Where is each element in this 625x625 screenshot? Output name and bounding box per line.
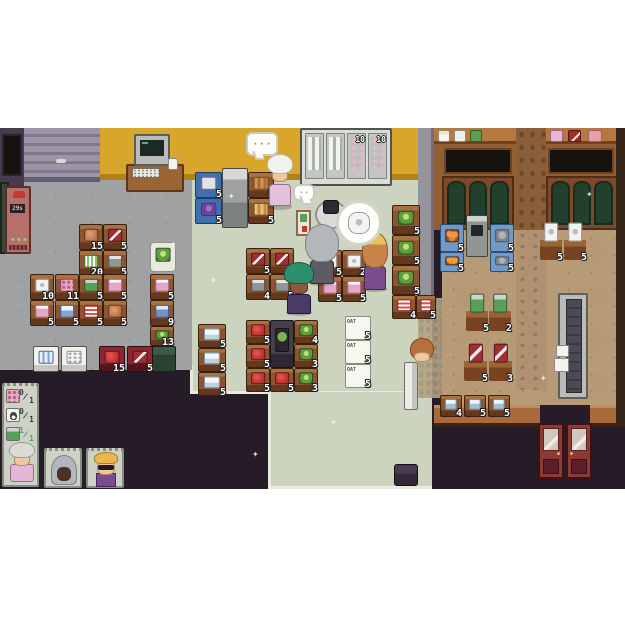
customer-card-blond[interactable]: [86, 448, 124, 488]
mini-meat-slab: [588, 130, 602, 142]
shelf-can-green[interactable]: 5: [79, 274, 103, 300]
granny-hair: [9, 442, 35, 458]
cerealstripe-item: [84, 305, 98, 317]
customer-portrait-granny[interactable]: [6, 442, 38, 484]
item-label: ✦: [330, 418, 337, 427]
stock-count: 5: [365, 380, 371, 390]
item-label: ✦: [252, 450, 259, 459]
stock-count: 2: [506, 324, 512, 334]
pinkbottle-item: [155, 279, 169, 291]
ham-item: [84, 229, 98, 241]
tp-item: [544, 223, 558, 242]
stock-count: 5: [121, 318, 127, 328]
plantsprout-item: [275, 328, 289, 352]
pinkbottle-item: [108, 279, 122, 291]
stock-count: 5: [360, 294, 366, 304]
speech-bubble-small: · ·: [293, 184, 315, 201]
cabbage-item: [156, 247, 171, 262]
shelf-ham[interactable]: 15: [79, 224, 103, 250]
apple-item: [275, 373, 289, 384]
blue-container-shelf[interactable]: 5: [464, 395, 486, 417]
salmon-table[interactable]: 5: [464, 345, 487, 381]
mini-oat-box: [438, 130, 450, 142]
npc-old-lady[interactable]: [264, 154, 296, 210]
fish-item: [251, 253, 265, 265]
crate-goods[interactable]: 5: [490, 224, 514, 252]
granny-dress: [10, 464, 34, 482]
bluebottles-item: [39, 351, 54, 363]
stock-count: 5: [504, 409, 510, 419]
customer-card-hooded[interactable]: [44, 448, 82, 488]
thought-bubble-toilet-paper: [336, 200, 382, 246]
cangrey-item: [108, 255, 122, 267]
cangreen-item: [84, 279, 98, 291]
game-viewport: 29s 10 10 105115152055555559131555555545…: [0, 128, 625, 489]
sunglasses-icon: [98, 465, 114, 470]
stock-count: 5: [557, 253, 563, 263]
shelf-can-grey[interactable]: 4: [246, 274, 270, 300]
waterjug-item: [204, 329, 220, 340]
cabbage-tier[interactable]: 5: [392, 265, 420, 295]
purplefruit-item: [201, 203, 217, 215]
shelf-salmon[interactable]: 5: [103, 224, 127, 250]
shelf-cereal-stripe[interactable]: 5: [79, 300, 103, 326]
animalface-item: [495, 256, 509, 265]
shelf-apples[interactable]: 5: [246, 320, 270, 344]
cabbage-item: [398, 270, 414, 285]
salmon-table[interactable]: 3: [489, 345, 512, 381]
mini-white-box: [454, 130, 466, 142]
flowermeat-item: [60, 279, 74, 291]
blond-shirt: [96, 473, 116, 487]
shelf-oat-box[interactable]: OAT5: [345, 316, 371, 340]
cangreen-item: [493, 294, 507, 313]
shelf-oat-box[interactable]: OAT5: [345, 364, 371, 388]
stock-count: 3: [507, 374, 513, 384]
seed-stand[interactable]: [270, 320, 294, 368]
stock-count: 5: [216, 216, 222, 226]
shelf-cereal-green[interactable]: 20: [79, 250, 103, 276]
apple-item: [105, 351, 120, 363]
animalface-item: [495, 229, 509, 243]
crate-oranges[interactable]: 5: [440, 224, 464, 252]
shelf-water-jug[interactable]: 5: [198, 348, 226, 372]
toilet-paper-icon: [348, 212, 370, 234]
stock-count: 5: [482, 374, 488, 384]
blue-container-shelf[interactable]: 4: [440, 395, 462, 417]
item-label: OAT: [347, 319, 356, 325]
cangrey-item: [251, 279, 265, 291]
cerealgreen-item: [84, 255, 98, 267]
item-label: ✦: [210, 276, 217, 285]
stock-tag: 10: [376, 135, 386, 144]
shelf-toilet-paper[interactable]: 10: [30, 274, 54, 300]
shopping-list-panel[interactable]: 0/1 0/1 1/1: [2, 383, 39, 487]
oranges-item: [445, 256, 459, 265]
stock-count: 15: [113, 364, 125, 374]
cabbage-item: [398, 210, 414, 225]
fish-item: [468, 344, 482, 363]
display-meat[interactable]: 5: [195, 172, 222, 198]
sparkle: ✦: [252, 450, 260, 458]
stock-count: 5: [220, 388, 226, 398]
shelf-water-jug[interactable]: 5: [198, 324, 226, 348]
item-label: OAT: [347, 343, 356, 349]
shelf-cabbage[interactable]: 3: [294, 344, 318, 368]
toilet-paper-table[interactable]: 5: [564, 224, 586, 260]
cabbage-item: [299, 373, 313, 384]
penguin-box-icon: [6, 408, 20, 422]
cabbage-tier[interactable]: 5: [392, 235, 420, 265]
item-count: 0/1: [19, 389, 35, 404]
shelf-can-grey[interactable]: 5: [103, 250, 127, 276]
npc-entrance-customer[interactable]: [408, 338, 436, 378]
fridge-bottles[interactable]: [33, 346, 59, 372]
mini-red-box: [568, 130, 581, 142]
item-label: ✦: [228, 192, 235, 201]
fish-item: [108, 229, 122, 241]
shelf-milk-box[interactable]: 5: [55, 300, 79, 326]
display-eggplant[interactable]: 5: [195, 198, 222, 224]
egg-box-stand[interactable]: [61, 346, 87, 372]
sparkle: ✦: [170, 240, 178, 248]
sparkle: ✦: [330, 418, 338, 426]
player-character[interactable]: [281, 262, 317, 316]
item-count: 0/1: [19, 408, 35, 423]
stock-count: 5: [458, 264, 464, 274]
crate-goods[interactable]: 5: [490, 252, 514, 272]
cabbage-item: [398, 240, 414, 255]
green-can-table[interactable]: 2: [489, 295, 511, 331]
shelf-blue-box[interactable]: 9: [150, 300, 174, 326]
blue-container-shelf[interactable]: 5: [488, 395, 510, 417]
shelf-cereal-stripe[interactable]: 4: [392, 295, 416, 319]
cabbage-tier[interactable]: 5: [392, 205, 420, 235]
storage-chest[interactable]: [394, 464, 418, 486]
fish-item: [133, 351, 148, 363]
mini-green-box: [470, 130, 482, 142]
green-can-table[interactable]: 5: [466, 295, 488, 331]
stock-count: 5: [147, 364, 153, 374]
fish-item: [493, 344, 507, 363]
stock-count: 5: [268, 216, 274, 226]
speech-bubble: · · ·: [246, 132, 278, 156]
screenshot-canvas: { "bubbles": { "dots": "· · ·", "small_d…: [0, 0, 625, 625]
stock-count: 5: [508, 264, 514, 274]
cerealstripe-item: [397, 300, 411, 311]
cabbage-item: [299, 325, 313, 336]
shelf-salmon-low[interactable]: 5: [127, 346, 153, 372]
shelf-pink-bottle[interactable]: 5: [103, 274, 127, 300]
crate-oranges[interactable]: 5: [440, 252, 464, 272]
ham-item: [108, 305, 122, 317]
item-label: ✦: [170, 240, 177, 249]
stock-tag: 10: [355, 135, 365, 144]
stock-count: 5: [430, 311, 436, 321]
shelf-ham[interactable]: 5: [103, 300, 127, 326]
mini-pink-box: [550, 130, 563, 142]
shelf-cabbage[interactable]: 3: [294, 368, 318, 392]
hooded-face: [57, 467, 71, 481]
shelf-water-jug[interactable]: 5: [198, 372, 226, 396]
item-count-done: 1/1: [19, 427, 35, 442]
eggbox-item: [67, 351, 82, 363]
stock-count: 3: [312, 384, 318, 394]
shelf-apples[interactable]: 5: [270, 368, 294, 392]
flower-meat-icon: [6, 389, 20, 403]
cangreen-item: [470, 294, 484, 313]
stock-count: 5: [581, 253, 587, 263]
sparkle: ✦: [228, 192, 236, 200]
shelf-oat-box[interactable]: OAT5: [345, 340, 371, 364]
list-item[interactable]: 0/1: [6, 407, 35, 425]
blond-hair: [94, 452, 118, 464]
shelf-flower-meat[interactable]: 11: [55, 274, 79, 300]
green-can-icon: [6, 427, 20, 441]
shelf-cabbage[interactable]: 4: [294, 320, 318, 344]
tp-item: [347, 255, 361, 267]
sparkle: ✦: [540, 374, 548, 382]
shelf-pink-bottle[interactable]: 5: [30, 300, 54, 326]
meatpink-item: [201, 177, 217, 189]
stock-count: 5: [480, 409, 486, 419]
shelf-apples[interactable]: 5: [246, 368, 270, 392]
shelf-cabbage[interactable]: 13: [150, 326, 174, 346]
shelf-apples-low[interactable]: 15: [99, 346, 125, 372]
apple-item: [251, 325, 265, 336]
list-item[interactable]: 0/1: [6, 388, 35, 406]
stock-count: 4: [456, 409, 462, 419]
stock-count: 5: [48, 318, 54, 328]
bluebox-item: [155, 305, 169, 317]
pinkbottle-item: [35, 305, 49, 317]
pinkbottle-item: [347, 281, 361, 293]
item-label: OAT: [347, 367, 356, 373]
cabbage-item: [299, 349, 313, 360]
waterjug-item: [204, 353, 220, 364]
waterjug-item: [204, 377, 220, 388]
milkbox-item: [60, 305, 74, 317]
apple-item: [251, 373, 265, 384]
apple-item: [251, 349, 265, 360]
item-label: ✦: [540, 374, 547, 383]
sparkle: ✦: [210, 276, 218, 284]
item-label: ✦: [586, 190, 593, 199]
toilet-paper-table[interactable]: 5: [540, 224, 562, 260]
shelf-salmon[interactable]: 5: [246, 248, 270, 274]
vending-machine[interactable]: [466, 215, 488, 257]
oranges-item: [445, 229, 459, 243]
tp-item: [35, 279, 49, 291]
shelf-cereal-stripe[interactable]: 5: [416, 295, 436, 319]
tp-item: [568, 223, 582, 242]
vending-screen: [471, 225, 483, 236]
sparkle: ✦: [586, 190, 594, 198]
shelf-pink-bottle[interactable]: 5: [150, 274, 174, 300]
shelf-apples[interactable]: 5: [246, 344, 270, 368]
